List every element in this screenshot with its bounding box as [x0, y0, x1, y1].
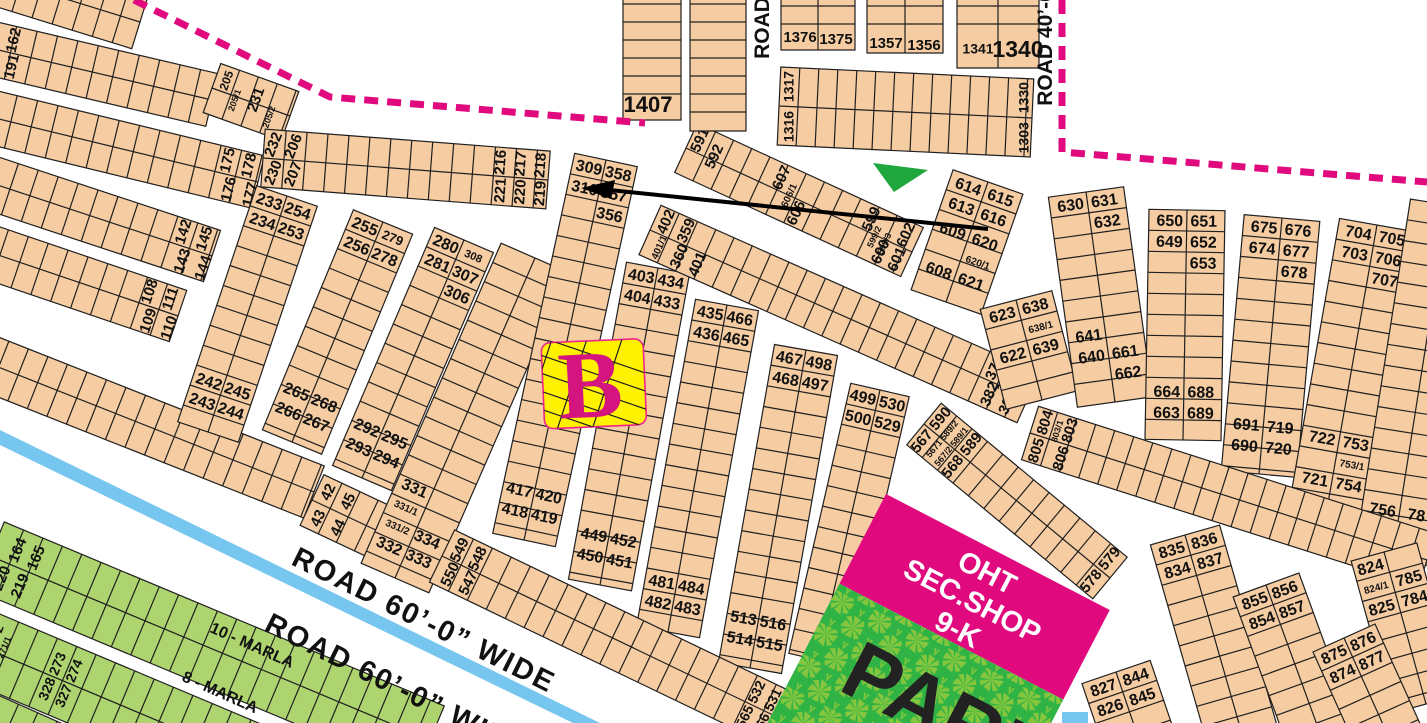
svg-text:1317: 1317 — [781, 71, 797, 102]
svg-text:1376: 1376 — [783, 29, 816, 46]
svg-text:675: 675 — [1250, 218, 1278, 237]
svg-text:664: 664 — [1153, 384, 1180, 401]
svg-text:1303: 1303 — [1016, 122, 1032, 153]
svg-text:690: 690 — [1230, 437, 1258, 456]
svg-text:1356: 1356 — [907, 37, 940, 54]
svg-text:691: 691 — [1232, 416, 1260, 435]
svg-text:674: 674 — [1248, 239, 1276, 258]
svg-text:652: 652 — [1190, 234, 1217, 251]
svg-text:1375: 1375 — [819, 31, 852, 48]
svg-text:218: 218 — [531, 152, 550, 178]
svg-text:221: 221 — [491, 177, 510, 203]
svg-text:653: 653 — [1190, 255, 1217, 272]
svg-text:650: 650 — [1156, 213, 1183, 230]
svg-text:720: 720 — [1264, 440, 1292, 459]
svg-text:ROAD: ROAD — [751, 0, 774, 59]
svg-text:78: 78 — [1406, 506, 1426, 526]
svg-text:689: 689 — [1187, 405, 1214, 422]
svg-text:1341: 1341 — [962, 41, 993, 57]
svg-text:1407: 1407 — [624, 92, 673, 117]
svg-text:677: 677 — [1282, 242, 1310, 261]
svg-text:719: 719 — [1266, 419, 1294, 438]
svg-text:688: 688 — [1187, 384, 1214, 401]
svg-text:649: 649 — [1156, 234, 1183, 251]
svg-text:219: 219 — [531, 180, 550, 206]
svg-text:1330: 1330 — [1015, 82, 1031, 113]
svg-text:217: 217 — [511, 151, 530, 177]
svg-text:678: 678 — [1280, 263, 1308, 282]
svg-text:B: B — [556, 329, 626, 439]
svg-text:1357: 1357 — [869, 35, 902, 52]
svg-text:1316: 1316 — [781, 111, 797, 142]
svg-text:651: 651 — [1190, 213, 1217, 230]
svg-text:663: 663 — [1153, 405, 1180, 422]
svg-text:220: 220 — [511, 179, 530, 205]
svg-text:676: 676 — [1284, 222, 1312, 241]
svg-text:ROAD 40’-0: ROAD 40’-0 — [1034, 0, 1057, 106]
svg-text:216: 216 — [491, 149, 510, 175]
